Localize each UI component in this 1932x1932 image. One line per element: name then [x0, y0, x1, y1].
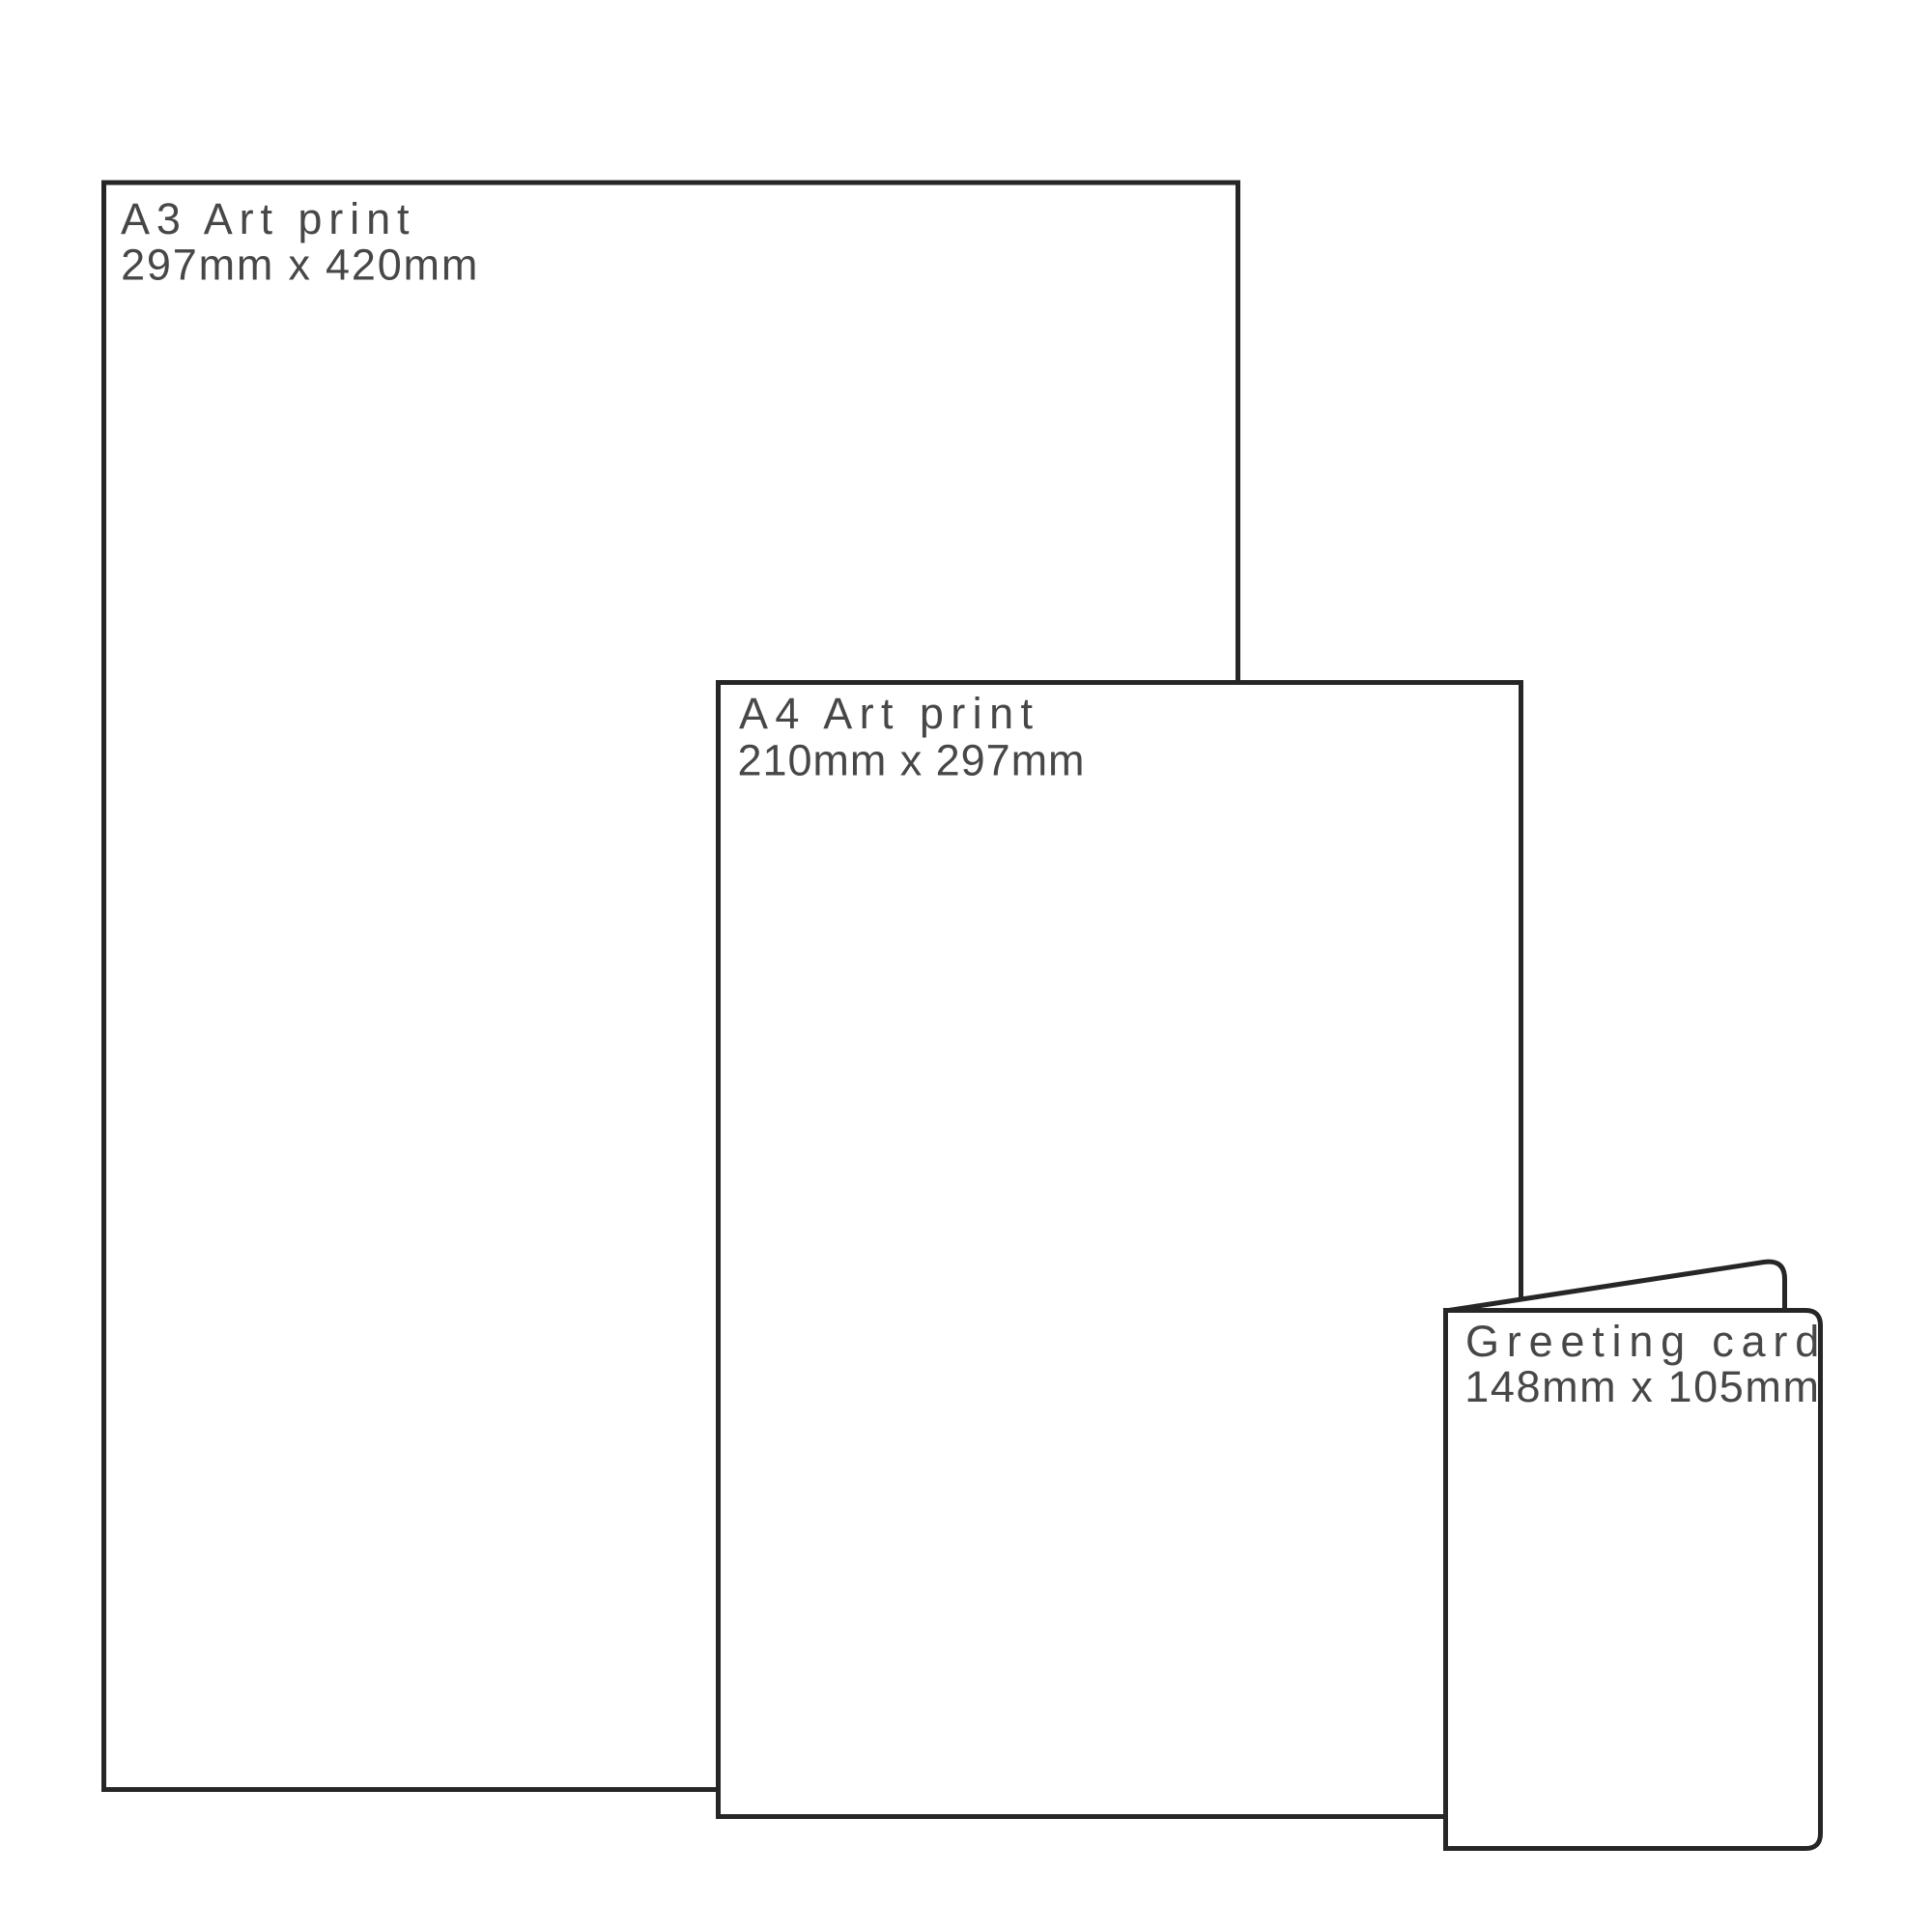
- svg-text:Greeting card: Greeting card: [1465, 1317, 1827, 1366]
- svg-text:210mm x 297mm: 210mm x 297mm: [738, 736, 1086, 785]
- svg-text:148mm x 105mm: 148mm x 105mm: [1464, 1362, 1820, 1411]
- svg-text:A3 Art print: A3 Art print: [121, 194, 415, 243]
- svg-text:A4 Art print: A4 Art print: [739, 689, 1039, 738]
- svg-text:297mm x 420mm: 297mm x 420mm: [121, 240, 479, 289]
